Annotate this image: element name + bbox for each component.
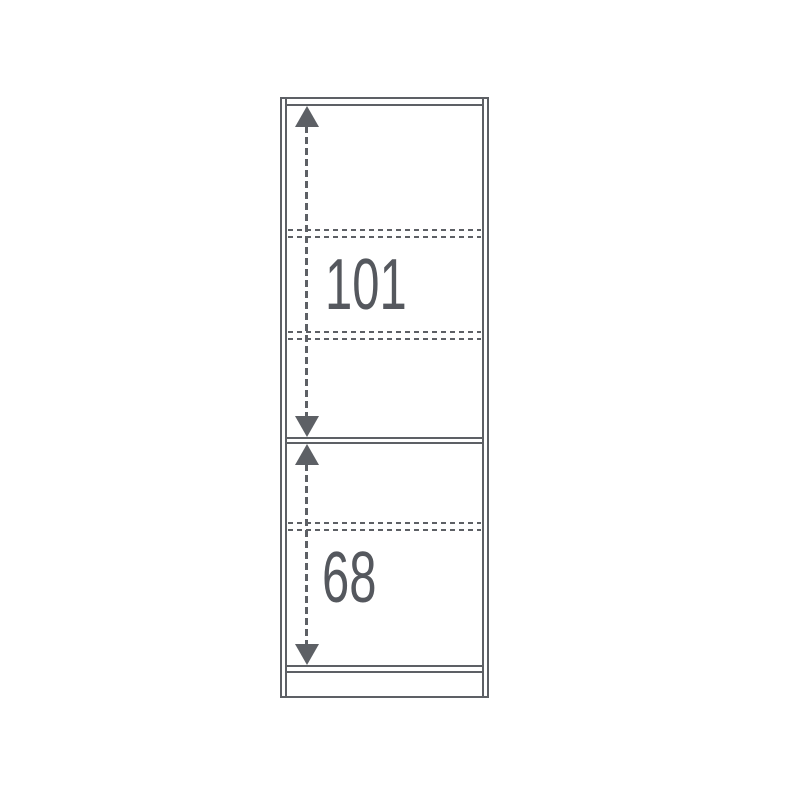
cabinet-left-side-outer-line: [280, 97, 282, 698]
arrow-down-icon: [295, 416, 319, 437]
arrow-up-icon: [295, 444, 319, 465]
adjustable-shelf-3-dashed-line-bottom: [288, 529, 481, 531]
adjustable-shelf-3-dashed-line-top: [288, 522, 481, 524]
cabinet-right-side-outer-line: [487, 97, 489, 698]
cabinet-bottom-edge-line: [280, 696, 489, 698]
upper-dimension-label: 101: [325, 249, 407, 321]
lower-dimension-line: [305, 464, 308, 645]
upper-dimension-line: [305, 126, 308, 418]
cabinet-base-shelf-lower-line: [287, 671, 482, 673]
lower-dimension-label: 68: [322, 542, 376, 614]
cabinet-top-panel-outer-line: [280, 97, 489, 99]
cabinet-base-shelf-upper-line: [287, 665, 482, 667]
cabinet-diagram: 101 68: [0, 0, 800, 800]
adjustable-shelf-2-dashed-line-top: [288, 331, 481, 333]
adjustable-shelf-1-dashed-line-top: [288, 229, 481, 231]
cabinet-middle-divider-upper-line: [287, 437, 482, 439]
cabinet-left-side-inner-line: [285, 99, 287, 696]
arrow-down-icon: [295, 644, 319, 665]
cabinet-right-side-inner-line: [482, 99, 484, 696]
arrow-up-icon: [295, 106, 319, 127]
adjustable-shelf-2-dashed-line-bottom: [288, 338, 481, 340]
adjustable-shelf-1-dashed-line-bottom: [288, 236, 481, 238]
